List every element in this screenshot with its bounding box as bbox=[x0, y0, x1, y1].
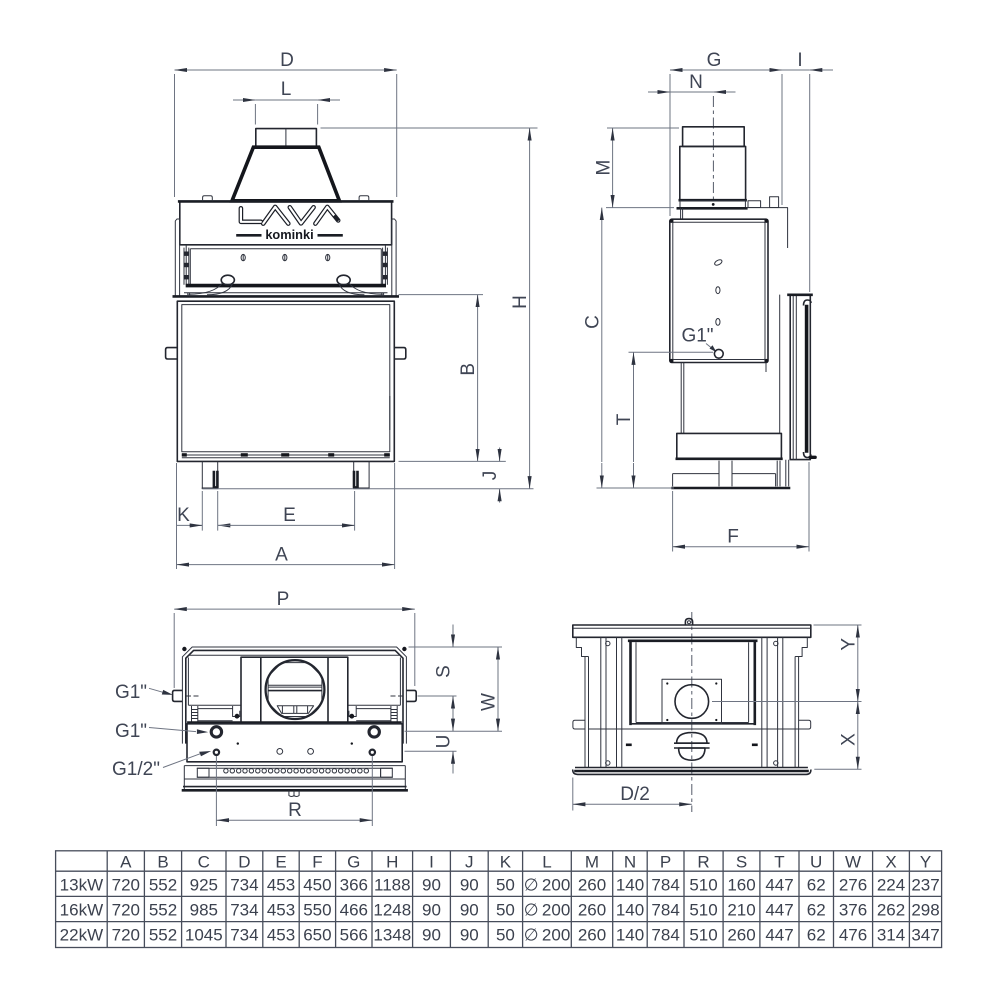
svg-text:90: 90 bbox=[422, 926, 441, 945]
svg-text:734: 734 bbox=[230, 926, 258, 945]
svg-text:550: 550 bbox=[303, 901, 331, 920]
svg-text:F: F bbox=[312, 852, 322, 871]
svg-text:784: 784 bbox=[651, 901, 679, 920]
svg-text:R: R bbox=[697, 852, 709, 871]
svg-text:G1": G1" bbox=[115, 721, 147, 742]
svg-text:G: G bbox=[347, 852, 360, 871]
svg-text:K: K bbox=[500, 852, 512, 871]
svg-text:237: 237 bbox=[911, 875, 939, 894]
svg-text:H: H bbox=[386, 852, 398, 871]
svg-text:E: E bbox=[283, 505, 296, 526]
svg-text:A: A bbox=[120, 852, 132, 871]
svg-text:X: X bbox=[885, 852, 896, 871]
svg-text:W: W bbox=[479, 693, 500, 711]
svg-text:62: 62 bbox=[807, 926, 826, 945]
svg-text:650: 650 bbox=[303, 926, 331, 945]
svg-text:1348: 1348 bbox=[373, 926, 411, 945]
svg-text:140: 140 bbox=[616, 901, 644, 920]
svg-text:140: 140 bbox=[616, 926, 644, 945]
svg-text:I: I bbox=[797, 50, 802, 71]
svg-text:C: C bbox=[582, 315, 603, 329]
svg-text:262: 262 bbox=[877, 901, 905, 920]
svg-text:447: 447 bbox=[765, 875, 793, 894]
svg-text:kominki: kominki bbox=[265, 227, 313, 242]
svg-text:160: 160 bbox=[727, 875, 755, 894]
svg-text:Y: Y bbox=[920, 852, 931, 871]
svg-text:552: 552 bbox=[149, 926, 177, 945]
svg-text:734: 734 bbox=[230, 875, 258, 894]
svg-text:L: L bbox=[281, 79, 292, 100]
svg-text:347: 347 bbox=[911, 926, 939, 945]
svg-text:90: 90 bbox=[422, 875, 441, 894]
svg-text:466: 466 bbox=[340, 901, 368, 920]
svg-text:720: 720 bbox=[112, 901, 140, 920]
svg-text:453: 453 bbox=[267, 926, 295, 945]
svg-text:T: T bbox=[774, 852, 784, 871]
svg-text:16kW: 16kW bbox=[60, 901, 103, 920]
svg-text:314: 314 bbox=[877, 926, 905, 945]
svg-text:453: 453 bbox=[267, 875, 295, 894]
svg-text:260: 260 bbox=[578, 926, 606, 945]
svg-text:22kW: 22kW bbox=[60, 926, 103, 945]
svg-text:50: 50 bbox=[496, 901, 515, 920]
svg-text:260: 260 bbox=[727, 926, 755, 945]
svg-text:210: 210 bbox=[727, 901, 755, 920]
svg-text:I: I bbox=[429, 852, 434, 871]
svg-text:K: K bbox=[177, 505, 190, 526]
svg-text:62: 62 bbox=[807, 901, 826, 920]
svg-text:260: 260 bbox=[578, 875, 606, 894]
svg-text:224: 224 bbox=[877, 875, 905, 894]
svg-text:D/2: D/2 bbox=[620, 784, 650, 805]
svg-text:J: J bbox=[480, 471, 501, 481]
svg-text:90: 90 bbox=[422, 901, 441, 920]
svg-text:S: S bbox=[434, 665, 455, 678]
svg-text:X: X bbox=[838, 733, 859, 746]
svg-text:A: A bbox=[275, 545, 288, 566]
svg-text:T: T bbox=[614, 413, 635, 425]
svg-text:C: C bbox=[198, 852, 210, 871]
svg-text:W: W bbox=[845, 852, 861, 871]
svg-text:62: 62 bbox=[807, 875, 826, 894]
svg-text:453: 453 bbox=[267, 901, 295, 920]
svg-text:N: N bbox=[624, 852, 636, 871]
svg-text:Y: Y bbox=[838, 638, 859, 651]
svg-text:M: M bbox=[593, 160, 614, 176]
svg-text:552: 552 bbox=[149, 901, 177, 920]
svg-text:784: 784 bbox=[651, 875, 679, 894]
svg-text:1045: 1045 bbox=[185, 926, 223, 945]
svg-text:13kW: 13kW bbox=[60, 875, 103, 894]
svg-text:476: 476 bbox=[839, 926, 867, 945]
svg-text:90: 90 bbox=[460, 926, 479, 945]
svg-text:985: 985 bbox=[190, 901, 218, 920]
svg-text:50: 50 bbox=[496, 926, 515, 945]
svg-text:298: 298 bbox=[911, 901, 939, 920]
svg-text:F: F bbox=[727, 527, 739, 548]
svg-text:S: S bbox=[736, 852, 747, 871]
svg-text:L: L bbox=[542, 852, 551, 871]
svg-text:376: 376 bbox=[839, 901, 867, 920]
svg-text:552: 552 bbox=[149, 875, 177, 894]
svg-text:50: 50 bbox=[496, 875, 515, 894]
svg-text:366: 366 bbox=[340, 875, 368, 894]
svg-text:D: D bbox=[280, 50, 294, 71]
svg-text:G: G bbox=[707, 50, 722, 71]
svg-text:P: P bbox=[660, 852, 671, 871]
svg-text:447: 447 bbox=[765, 926, 793, 945]
svg-text:450: 450 bbox=[303, 875, 331, 894]
svg-text:1248: 1248 bbox=[373, 901, 411, 920]
svg-text:G1/2": G1/2" bbox=[112, 759, 160, 780]
svg-text:566: 566 bbox=[340, 926, 368, 945]
svg-text:∅ 200: ∅ 200 bbox=[524, 926, 571, 945]
svg-text:J: J bbox=[465, 852, 474, 871]
svg-text:1188: 1188 bbox=[374, 875, 411, 894]
svg-text:925: 925 bbox=[190, 875, 218, 894]
svg-text:720: 720 bbox=[112, 926, 140, 945]
svg-text:90: 90 bbox=[460, 901, 479, 920]
svg-text:276: 276 bbox=[839, 875, 867, 894]
svg-text:G1": G1" bbox=[115, 682, 147, 703]
svg-text:∅ 200: ∅ 200 bbox=[524, 901, 571, 920]
svg-text:P: P bbox=[277, 589, 290, 610]
svg-text:B: B bbox=[458, 363, 479, 376]
svg-text:784: 784 bbox=[651, 926, 679, 945]
svg-text:∅ 200: ∅ 200 bbox=[524, 875, 571, 894]
svg-text:510: 510 bbox=[689, 901, 717, 920]
svg-text:B: B bbox=[157, 852, 168, 871]
svg-text:260: 260 bbox=[578, 901, 606, 920]
svg-text:G1": G1" bbox=[681, 326, 713, 347]
svg-text:140: 140 bbox=[616, 875, 644, 894]
svg-text:U: U bbox=[434, 735, 455, 749]
svg-text:H: H bbox=[510, 295, 531, 309]
svg-text:90: 90 bbox=[460, 875, 479, 894]
svg-text:N: N bbox=[689, 72, 703, 93]
svg-text:720: 720 bbox=[112, 875, 140, 894]
svg-text:E: E bbox=[275, 852, 286, 871]
svg-text:M: M bbox=[585, 852, 599, 871]
svg-text:D: D bbox=[238, 852, 250, 871]
svg-text:510: 510 bbox=[689, 926, 717, 945]
svg-text:447: 447 bbox=[765, 901, 793, 920]
svg-text:U: U bbox=[810, 852, 822, 871]
svg-text:R: R bbox=[288, 800, 302, 821]
svg-text:734: 734 bbox=[230, 901, 258, 920]
svg-text:510: 510 bbox=[689, 875, 717, 894]
